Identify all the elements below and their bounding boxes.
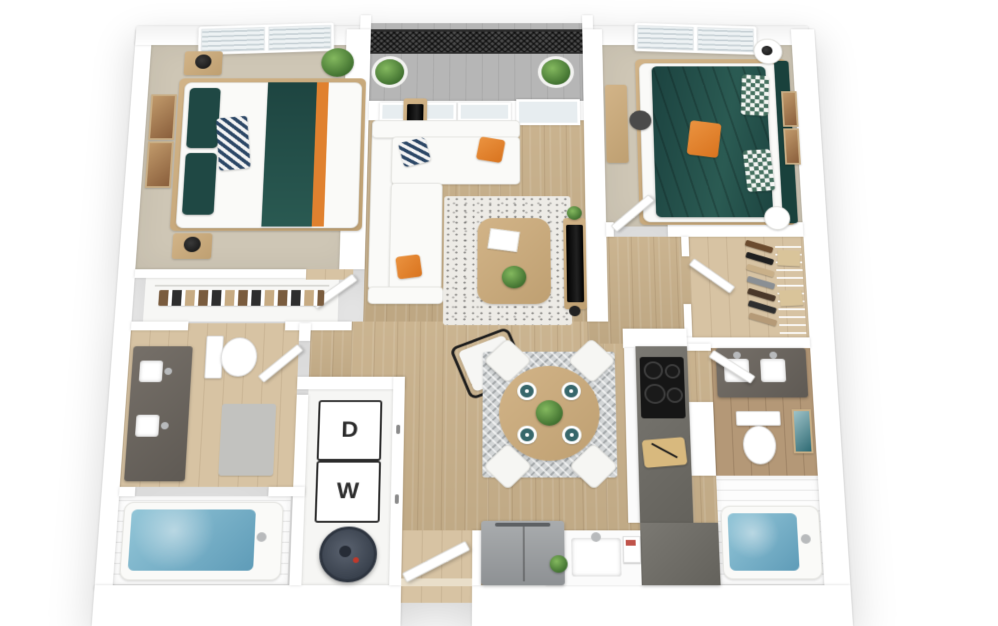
bathroom1-bath-mat [218, 404, 276, 476]
dryer-label: D [341, 417, 359, 443]
bedroom2-check-pillow-top [741, 74, 769, 116]
bedroom1-skylight-window [198, 23, 334, 55]
closet1-shoe-shelf [158, 290, 324, 306]
skylight-pane [697, 27, 754, 52]
stove-burner-1 [643, 361, 663, 379]
closet1-rod [155, 285, 330, 287]
floorplan-scene: D W [0, 0, 998, 626]
stove-burner-2 [665, 364, 681, 378]
closet2-storage-box-1 [777, 250, 800, 267]
outer-wall-bottom-right [472, 585, 853, 626]
wall-bathroom1-east-a [299, 323, 311, 341]
wall-entry-stub [472, 530, 481, 585]
coffee-table-book [487, 228, 520, 252]
bedroom2-desk-chair [629, 111, 651, 131]
refrigerator-handles [495, 523, 550, 527]
kitchen-cutting-board [642, 437, 688, 468]
wall-laundry-north [297, 377, 405, 390]
sofa-orange-pillow-1 [476, 136, 506, 163]
bathroom2-faucet-2 [769, 352, 777, 359]
bedroom1-striped-pillow [216, 116, 250, 171]
dryer-unit: D [317, 400, 383, 461]
floorplan: D W [91, 15, 906, 626]
wall-bathroom1-south-a [119, 487, 135, 496]
laundry-door-handle-1 [396, 425, 400, 434]
refrigerator-door-split [523, 525, 525, 582]
bedroom2-desk [605, 85, 629, 163]
laundry-door-handle-2 [395, 494, 399, 503]
wall-bedroom1-south [135, 269, 307, 278]
bedroom1-teal-pillow-top [186, 88, 221, 148]
bathroom2-art [792, 409, 814, 453]
bedroom2-nightstand-south [764, 206, 791, 230]
dining-plate-4 [562, 426, 582, 444]
skylight-pane [201, 27, 265, 53]
outer-wall-bottom-left [92, 585, 402, 626]
bedroom1-art-1 [148, 94, 177, 139]
balcony-glass-door [516, 99, 580, 125]
bedroom2-check-pillow-bottom [743, 149, 776, 192]
washer-label: W [336, 478, 359, 504]
bathtub2-water [727, 513, 799, 570]
bedroom2-skylight-window [634, 23, 756, 55]
bathroom2-sink-2 [760, 359, 786, 382]
wall-closet2-west-a [681, 237, 689, 257]
kitchen-sink [571, 538, 621, 577]
skylight-pane [637, 25, 694, 50]
washer-unit: W [314, 461, 381, 523]
living-window-2 [458, 102, 511, 121]
sofa-orange-pillow-2 [395, 254, 422, 279]
wall-bathroom2-west-b [689, 402, 716, 476]
refrigerator [481, 521, 565, 585]
stove-burner-3 [644, 384, 666, 404]
dining-plate-1 [517, 382, 536, 400]
kitchen-plant [550, 555, 568, 572]
bathroom2-toilet-tank [736, 411, 781, 426]
closet2-storage-box-2 [779, 290, 803, 307]
stove-burner-4 [666, 388, 683, 403]
console-speaker [569, 306, 581, 317]
bedroom1-art-2 [145, 141, 174, 187]
living-tv [566, 225, 584, 302]
bedroom2-art-1 [781, 91, 799, 127]
dining-plate-3 [517, 426, 537, 444]
wall-kitchen-north [623, 329, 687, 348]
bathtub2-faucet [801, 534, 811, 544]
bathtub1-water [128, 509, 256, 570]
wall-closet1-south-b [285, 322, 352, 331]
bathroom1-sink-2 [135, 415, 160, 437]
dining-centerpiece [536, 400, 563, 426]
bedroom2-art-2 [783, 128, 801, 164]
cookbook-accent [626, 540, 636, 546]
balcony-railing [370, 29, 582, 53]
wall-closet1-south-a [131, 322, 189, 331]
skylight-pane [268, 25, 331, 50]
dining-plate-2 [561, 382, 580, 400]
kitchen-faucet [591, 532, 601, 542]
bathroom1-sink-1 [139, 361, 163, 383]
console-plant [567, 206, 582, 219]
sofa-armrest [367, 287, 443, 304]
bedroom2-orange-pillow [687, 120, 722, 158]
bedroom1-teal-pillow-bottom [182, 153, 217, 215]
wall-bathroom2-west-a [687, 344, 711, 351]
sofa-back-top [372, 120, 520, 138]
bedroom2-lamp [761, 46, 772, 55]
coffee-table-plant [502, 266, 527, 288]
kitchen-counter-corner [640, 523, 721, 585]
bedroom1-teal-runner [261, 82, 317, 226]
bathroom2-faucet-1 [733, 352, 741, 359]
wall-bathroom1-south-b [268, 487, 305, 496]
balcony-plant-right [541, 59, 570, 84]
